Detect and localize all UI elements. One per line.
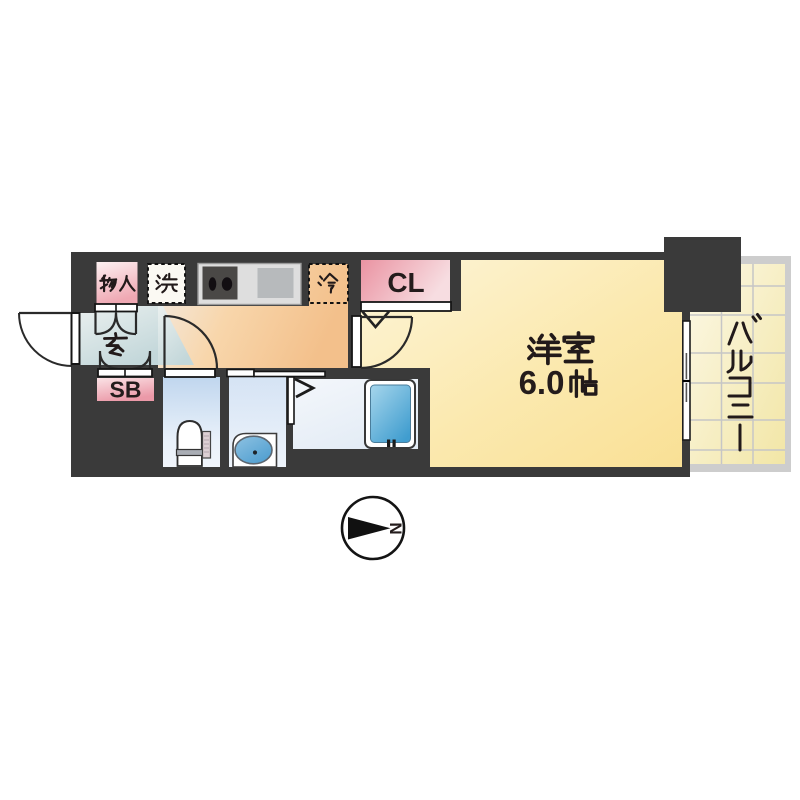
svg-text:SB: SB xyxy=(110,377,142,403)
svg-text:CL: CL xyxy=(387,267,424,298)
svg-text:N: N xyxy=(386,522,405,534)
svg-text:6.0: 6.0 xyxy=(519,364,565,401)
